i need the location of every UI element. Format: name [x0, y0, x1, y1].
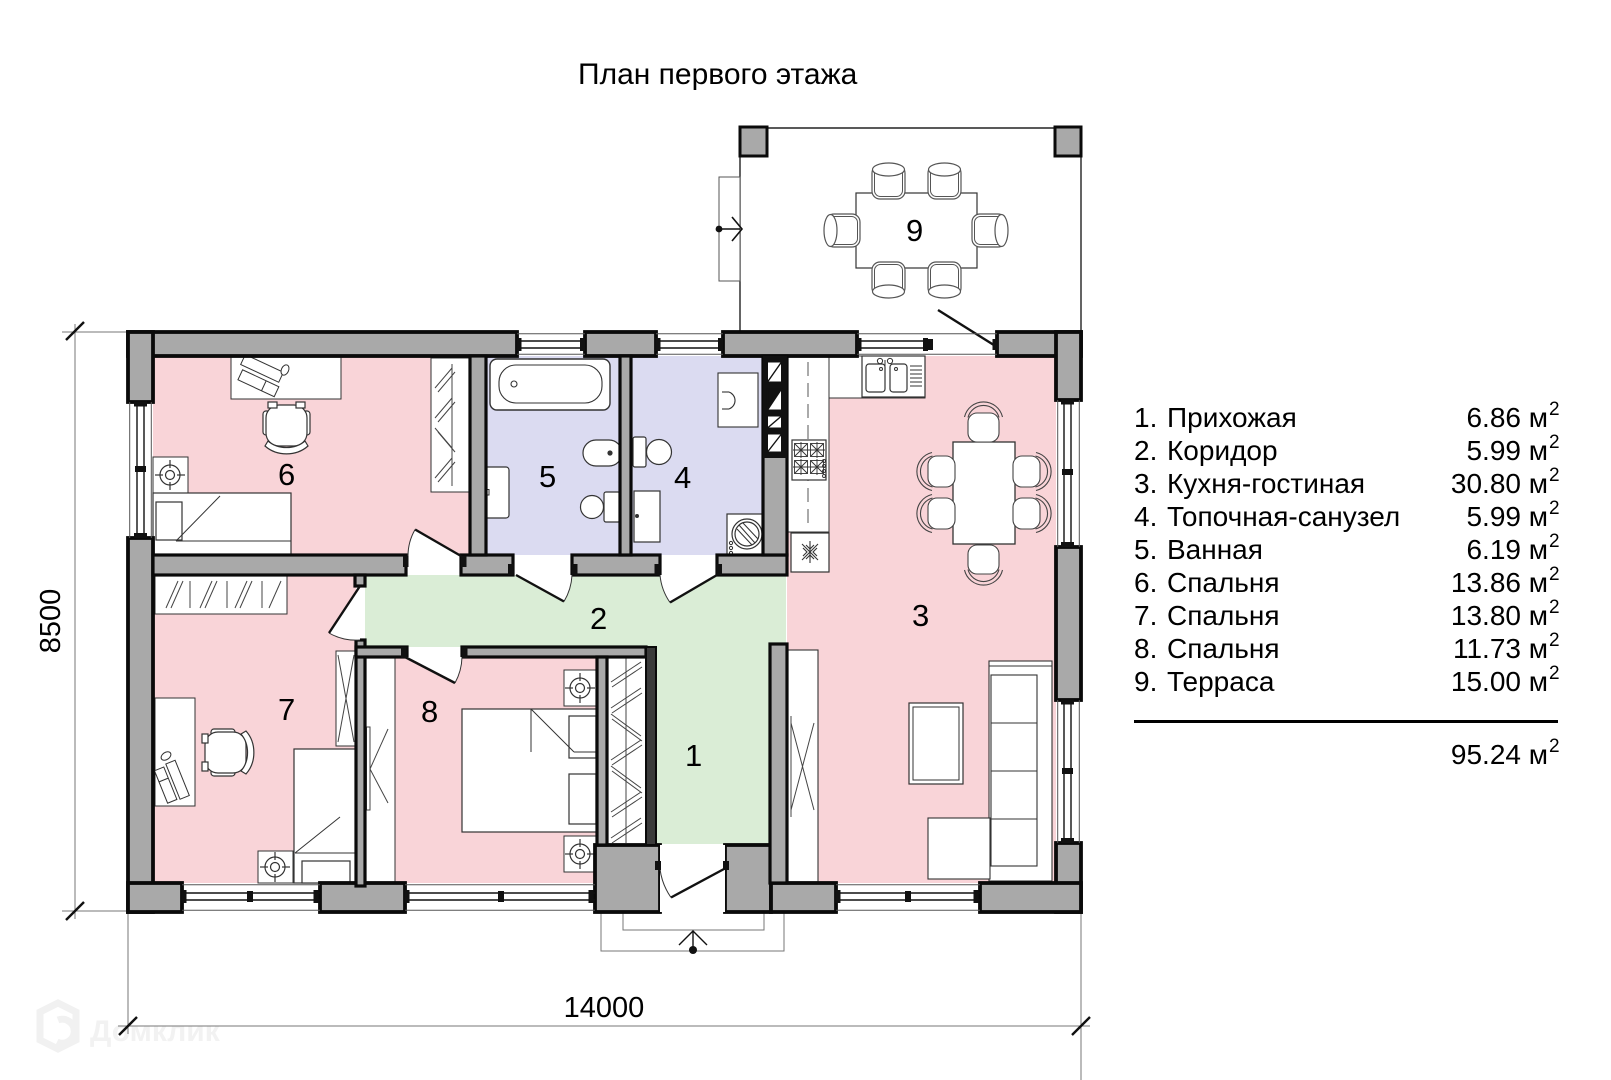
svg-text:5.: 5.: [1134, 534, 1157, 565]
svg-text:2.: 2.: [1134, 435, 1157, 466]
svg-text:План первого этажа: План первого этажа: [578, 58, 858, 91]
svg-text:5.99 м: 5.99 м: [1466, 435, 1548, 466]
svg-text:4.: 4.: [1134, 501, 1157, 532]
svg-text:2: 2: [590, 601, 607, 636]
svg-text:2: 2: [1549, 564, 1560, 585]
svg-text:2: 2: [1549, 630, 1560, 651]
svg-text:2: 2: [1549, 465, 1560, 486]
svg-text:2: 2: [1549, 531, 1560, 552]
svg-text:Прихожая: Прихожая: [1167, 402, 1297, 433]
svg-text:6.: 6.: [1134, 567, 1157, 598]
svg-text:1: 1: [685, 738, 702, 773]
svg-text:30.80 м: 30.80 м: [1451, 468, 1548, 499]
svg-text:8: 8: [421, 694, 438, 729]
svg-text:95.24 м: 95.24 м: [1451, 739, 1548, 770]
svg-text:14000: 14000: [564, 992, 645, 1024]
svg-text:6.19 м: 6.19 м: [1466, 534, 1548, 565]
svg-text:13.80 м: 13.80 м: [1451, 600, 1548, 631]
svg-text:6.86 м: 6.86 м: [1466, 402, 1548, 433]
svg-text:Спальня: Спальня: [1167, 600, 1280, 631]
svg-text:Коридор: Коридор: [1167, 435, 1278, 466]
svg-text:13.86 м: 13.86 м: [1451, 567, 1548, 598]
svg-text:3: 3: [912, 598, 929, 633]
svg-text:2: 2: [1549, 736, 1560, 757]
svg-text:2: 2: [1549, 399, 1560, 420]
svg-text:11.73 м: 11.73 м: [1453, 633, 1548, 664]
svg-text:2: 2: [1549, 663, 1560, 684]
svg-text:1.: 1.: [1134, 402, 1157, 433]
svg-text:8500: 8500: [35, 589, 67, 654]
svg-text:9.: 9.: [1134, 666, 1157, 697]
svg-text:9: 9: [906, 213, 923, 248]
svg-text:Спальня: Спальня: [1167, 567, 1280, 598]
svg-text:Кухня-гостиная: Кухня-гостиная: [1167, 468, 1365, 499]
svg-text:3.: 3.: [1134, 468, 1157, 499]
svg-text:5.99 м: 5.99 м: [1466, 501, 1548, 532]
svg-text:Спальня: Спальня: [1167, 633, 1280, 664]
svg-text:Домклик: Домклик: [90, 1015, 221, 1048]
svg-text:2: 2: [1549, 432, 1560, 453]
svg-text:8.: 8.: [1134, 633, 1157, 664]
svg-text:15.00 м: 15.00 м: [1451, 666, 1548, 697]
svg-text:4: 4: [674, 460, 691, 495]
svg-text:7: 7: [278, 692, 295, 727]
svg-text:2: 2: [1549, 597, 1560, 618]
svg-text:Топочная-санузел: Топочная-санузел: [1167, 501, 1400, 532]
svg-text:2: 2: [1549, 498, 1560, 519]
svg-text:5: 5: [539, 459, 556, 494]
svg-text:Терраса: Терраса: [1167, 666, 1275, 697]
svg-text:6: 6: [278, 457, 295, 492]
svg-text:7.: 7.: [1134, 600, 1157, 631]
svg-text:Ванная: Ванная: [1167, 534, 1263, 565]
